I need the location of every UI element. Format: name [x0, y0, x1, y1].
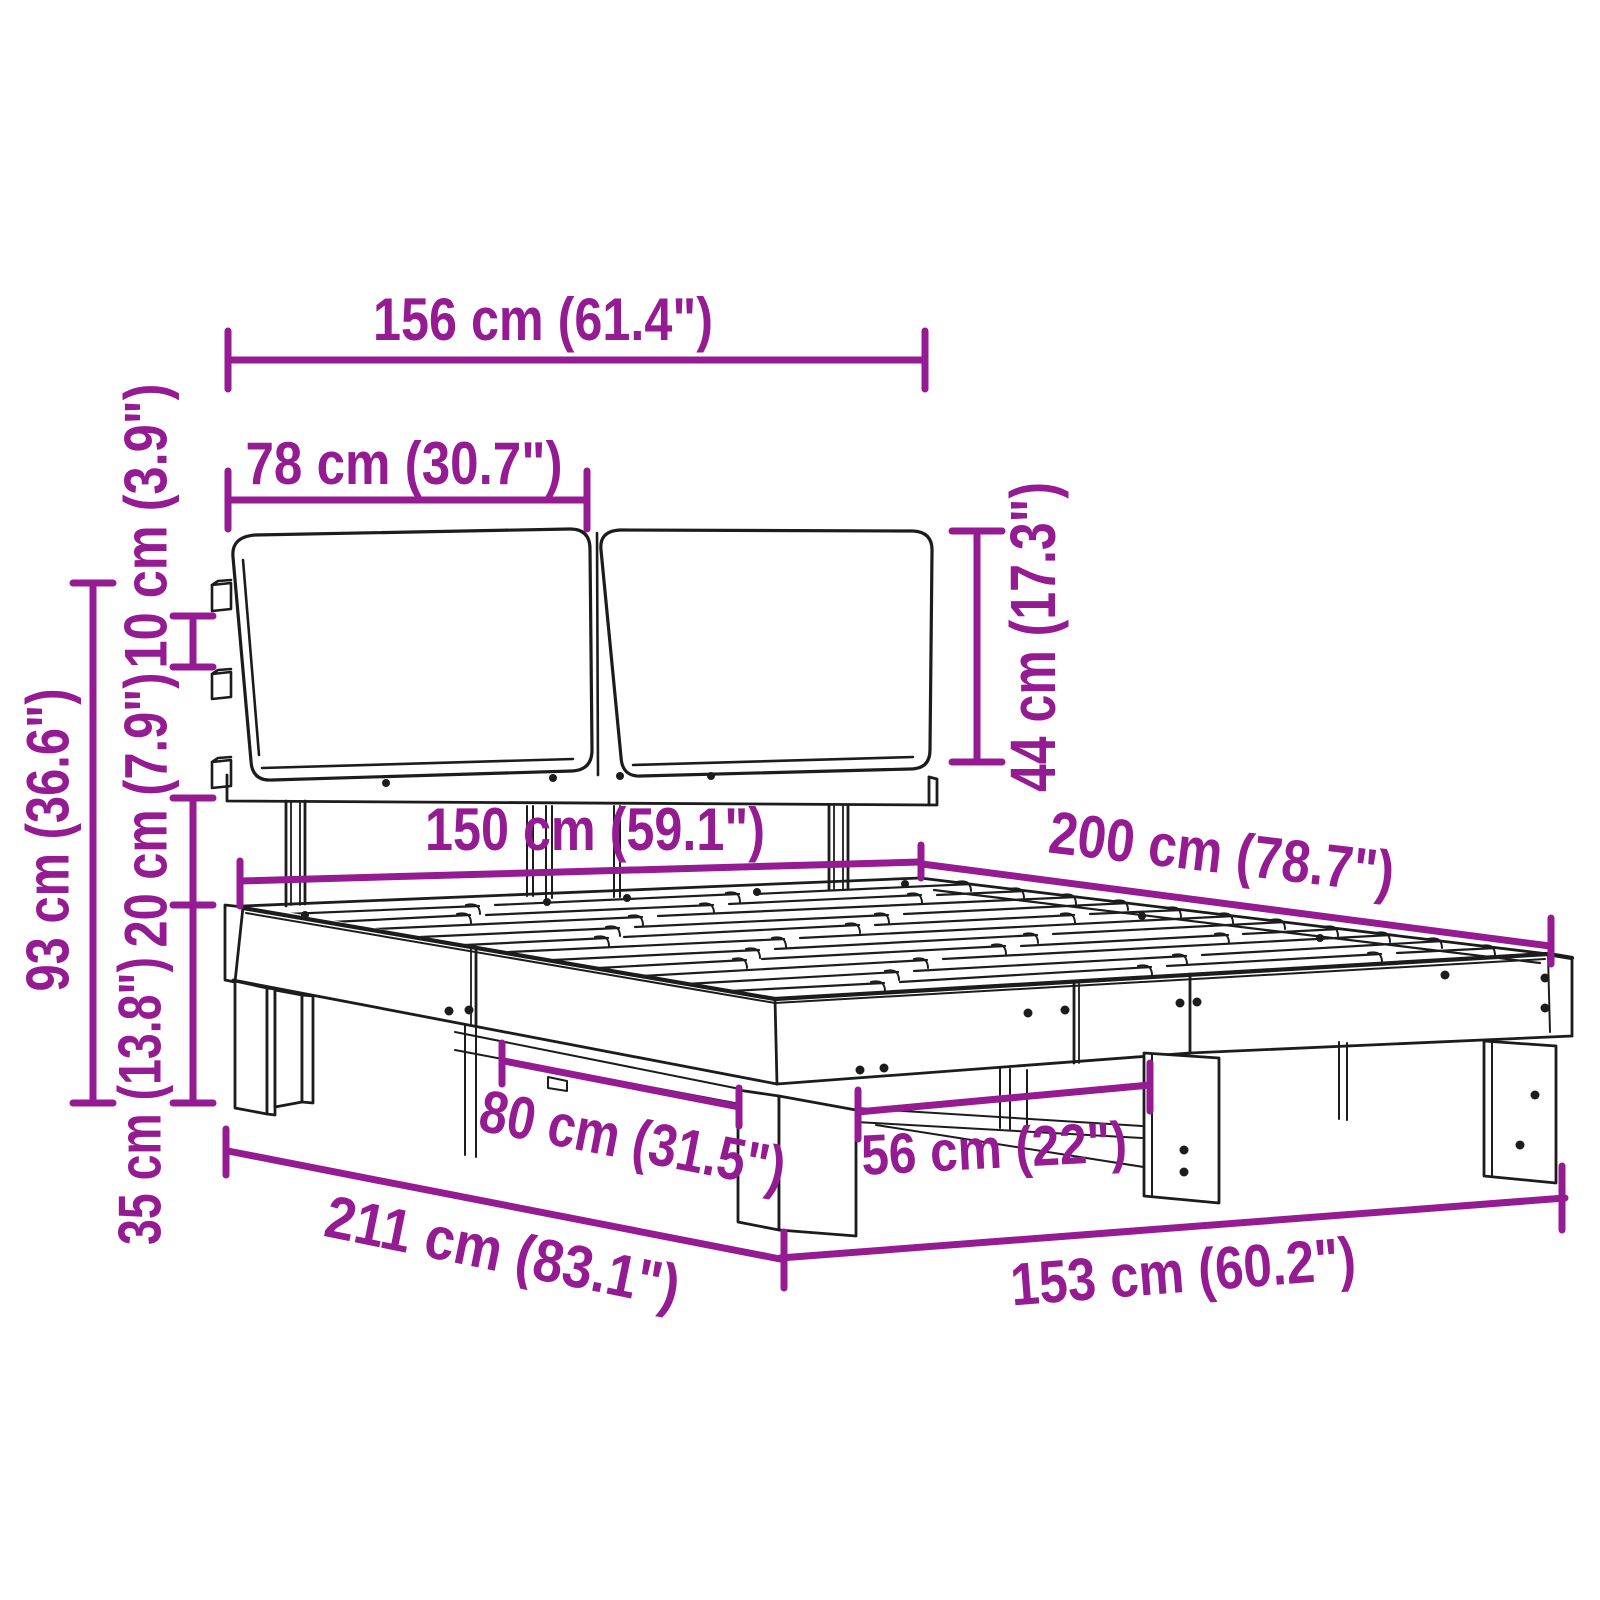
svg-text:78 cm (30.7"): 78 cm (30.7"): [246, 430, 563, 497]
svg-text:10 cm (3.9"): 10 cm (3.9"): [113, 384, 180, 669]
svg-text:35 cm (13.8"): 35 cm (13.8"): [107, 957, 174, 1245]
svg-text:93 cm (36.6"): 93 cm (36.6"): [15, 689, 82, 992]
svg-text:56 cm (22"): 56 cm (22"): [860, 1110, 1129, 1188]
svg-text:150 cm (59.1"): 150 cm (59.1"): [425, 796, 765, 863]
svg-text:44 cm (17.3"): 44 cm (17.3"): [997, 482, 1069, 792]
svg-text:156 cm (61.4"): 156 cm (61.4"): [373, 286, 713, 353]
svg-text:20 cm (7.9"): 20 cm (7.9"): [113, 673, 180, 948]
